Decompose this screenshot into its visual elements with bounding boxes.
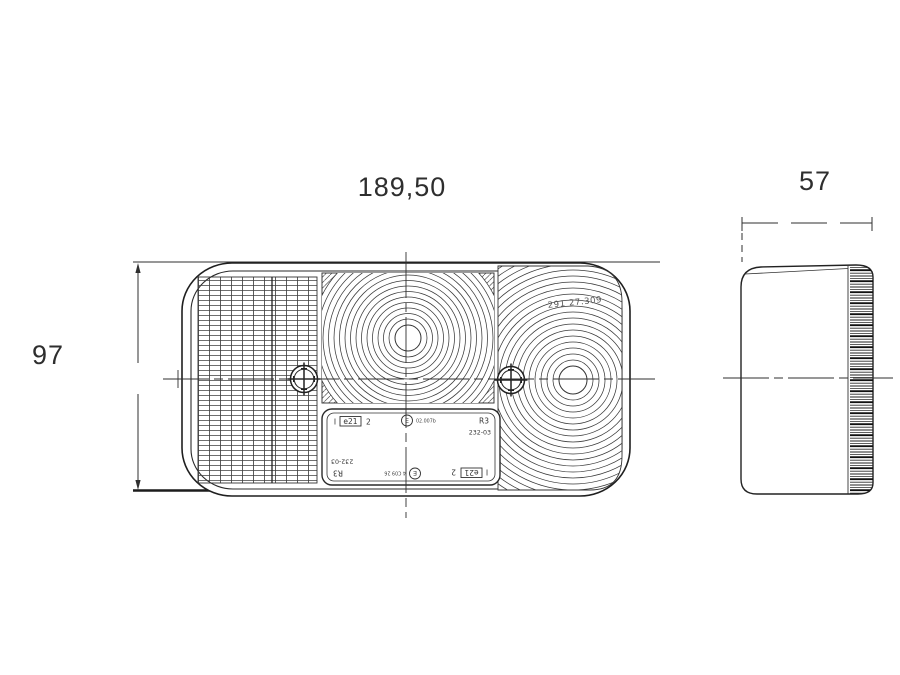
plate-category: 2 [366, 418, 371, 427]
plate-code: 4 C09 26 [384, 470, 406, 476]
plate-code: 02.007b [416, 419, 436, 425]
plate-type: R3 [333, 469, 343, 478]
plate-tick: I [334, 418, 336, 427]
approval-plate: I e21 2 E 02.007b R3 232-03 I e21 2 E 4 … [322, 409, 500, 485]
plate-tick: I [486, 468, 488, 477]
arrow-down [135, 480, 140, 490]
arrow-up [135, 263, 140, 273]
plate-regulation: 232-03 [331, 458, 353, 465]
front-view: 189,50 97 [32, 172, 713, 520]
dimension-width-label: 189,50 [358, 172, 447, 202]
fresnel-right-hole [559, 366, 587, 394]
plate-category: 2 [451, 468, 456, 477]
lamp-drawing-svg: 189,50 97 [0, 0, 900, 675]
e-mark-letter: E [413, 469, 417, 476]
plate-regulation: 232-03 [469, 430, 491, 437]
plate-country-code: e21 [464, 468, 478, 477]
technical-drawing-page: 189,50 97 [0, 0, 900, 675]
plate-country-code: e21 [343, 417, 357, 426]
plate-type: R3 [479, 417, 489, 426]
depth-dimension-line [742, 217, 872, 262]
height-dimension-line [135, 263, 140, 490]
dimension-height-label: 97 [32, 340, 64, 370]
side-ribbed-band [850, 266, 873, 494]
side-view: 57 [723, 166, 893, 494]
fresnel-center-hole [395, 325, 421, 351]
dimension-depth-label: 57 [799, 166, 831, 196]
